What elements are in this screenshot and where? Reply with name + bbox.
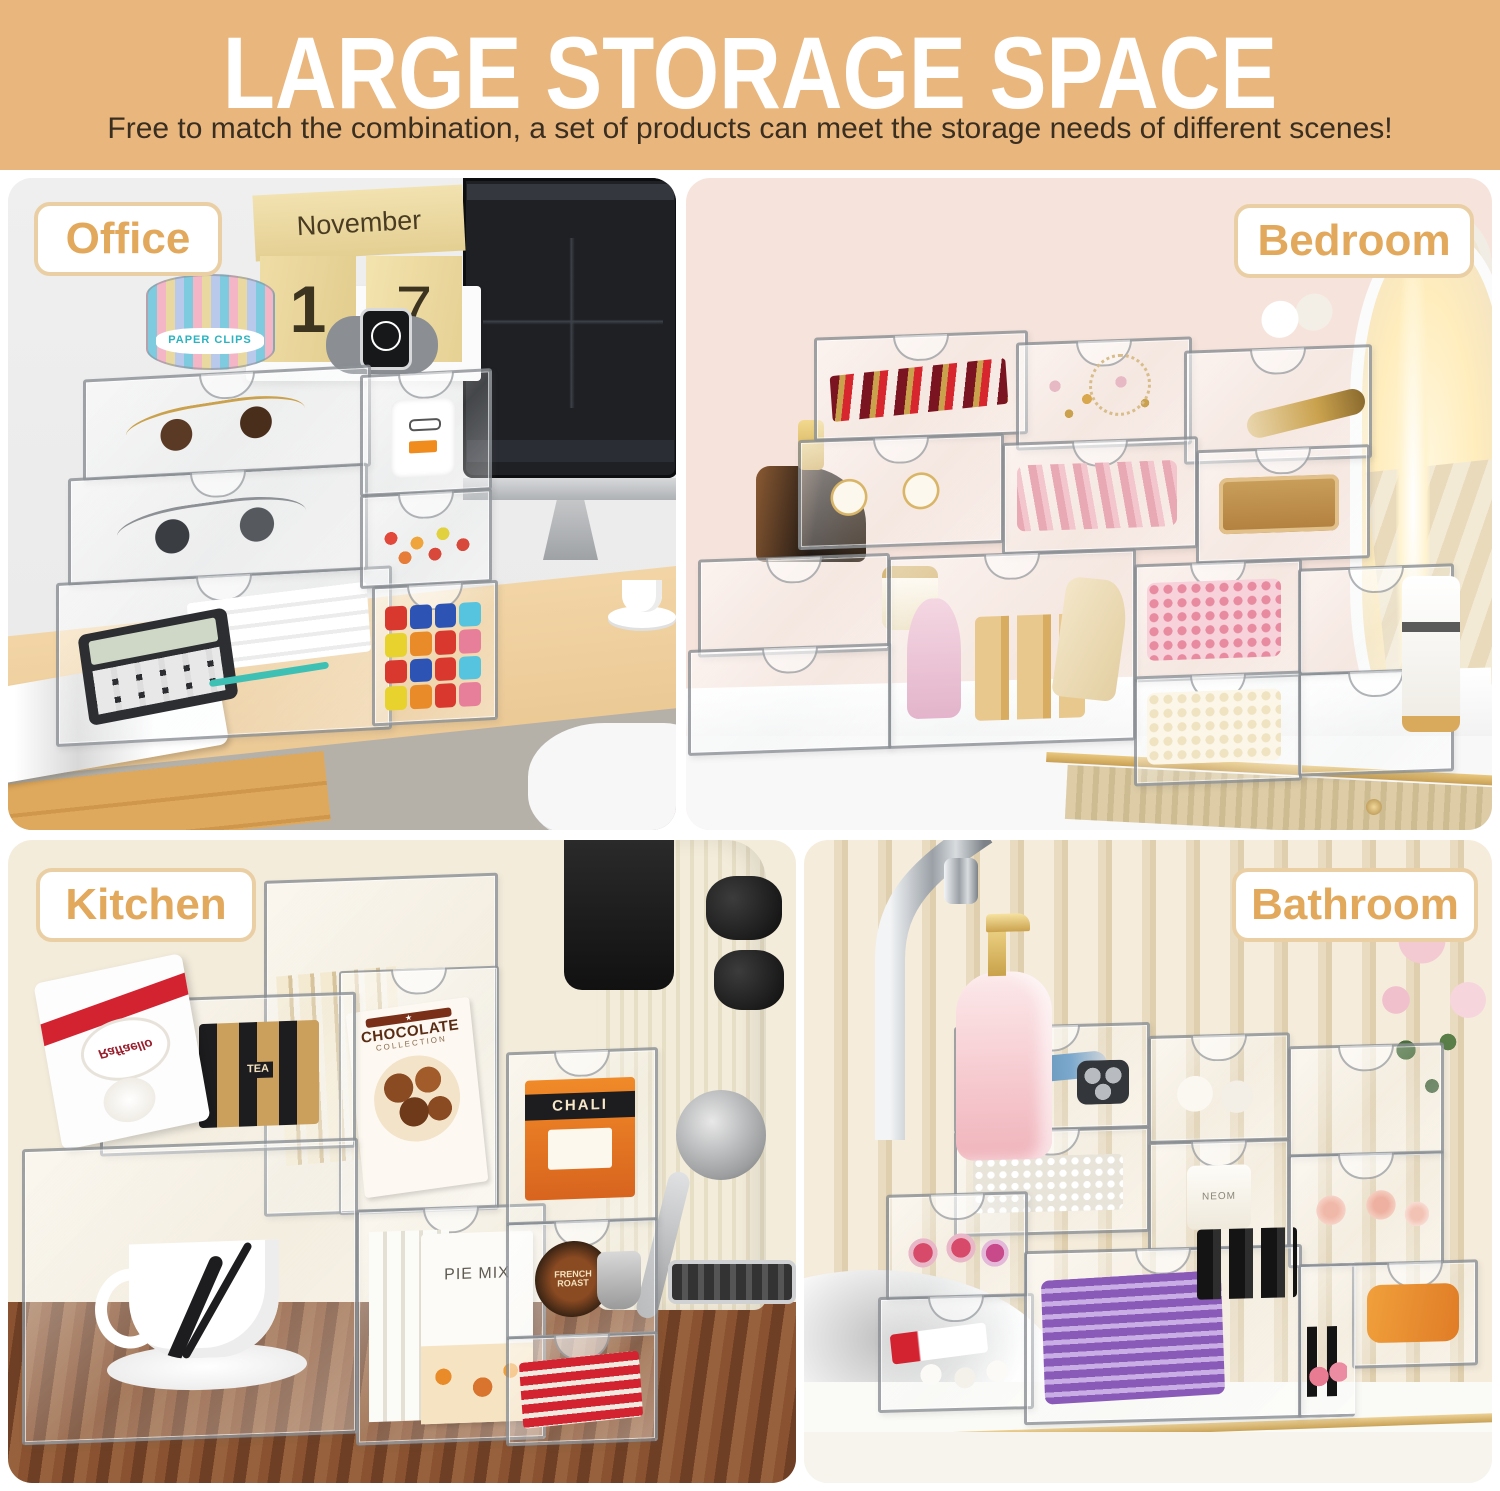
nail-polish-pink bbox=[1307, 1326, 1347, 1397]
bedroom-label: Bedroom bbox=[1234, 204, 1474, 278]
scented-candle: NEOM bbox=[1187, 1164, 1251, 1230]
cup-body bbox=[622, 580, 662, 612]
drawer-toothpaste bbox=[878, 1293, 1034, 1413]
pink-pearls bbox=[1147, 578, 1281, 661]
red-tea-packets bbox=[519, 1351, 643, 1429]
electric-shaver-head bbox=[1077, 1059, 1129, 1104]
orange-soaps bbox=[1367, 1283, 1459, 1343]
drawer-handle bbox=[1191, 1034, 1247, 1061]
marker-caps bbox=[385, 602, 481, 711]
chali-label: CHALI bbox=[552, 1096, 608, 1115]
bathroom-scene: NEOM bbox=[804, 840, 1492, 1483]
candle-label: NEOM bbox=[1202, 1191, 1236, 1202]
cotton-pads bbox=[1165, 1066, 1269, 1121]
kitchen-label-text: Kitchen bbox=[65, 880, 226, 930]
kitchen-label: Kitchen bbox=[36, 868, 256, 942]
drawer-handle bbox=[1250, 347, 1306, 375]
drawer-empty-left-1 bbox=[698, 553, 890, 658]
drawer-markers bbox=[372, 580, 498, 727]
skincare-bottle bbox=[1402, 576, 1460, 732]
box-chali: CHALI bbox=[506, 1047, 658, 1226]
drawer-handle bbox=[1255, 447, 1311, 475]
drawer-handle bbox=[398, 491, 454, 520]
office-label-text: Office bbox=[66, 214, 191, 264]
kraft-tea-bags: TEA bbox=[199, 1020, 319, 1128]
drawer-blush bbox=[1196, 444, 1370, 564]
drawer-handle bbox=[1338, 1045, 1394, 1072]
drawer-handle bbox=[1135, 1248, 1191, 1275]
drawer-orange bbox=[1352, 1259, 1478, 1368]
drawer-towels bbox=[1288, 1150, 1444, 1268]
blush-palette bbox=[1219, 474, 1339, 534]
drawer-handle bbox=[1348, 566, 1404, 594]
chocolate-box: ★ CHOCOLATE COLLECTION bbox=[346, 997, 489, 1199]
big-box-teacup bbox=[22, 1138, 358, 1446]
drawer-handle bbox=[984, 553, 1040, 581]
box-coffee-pods: FRENCH ROAST bbox=[506, 1217, 658, 1340]
box-red-packets bbox=[506, 1331, 658, 1446]
rolled-towels bbox=[1303, 1174, 1429, 1245]
drawer-cream-jars bbox=[798, 433, 1004, 550]
usba-port bbox=[409, 440, 437, 453]
drawer-nail-polish-pink bbox=[1298, 1263, 1355, 1418]
drawer-jewelry bbox=[1016, 336, 1192, 450]
rinse-cups bbox=[899, 1217, 1009, 1278]
raffaello-box: Raffaello bbox=[33, 953, 210, 1151]
pink-perfume bbox=[907, 597, 961, 719]
chali-sublabel bbox=[548, 1128, 612, 1170]
nail-polish-black-caps bbox=[1197, 1227, 1297, 1300]
drawer-cotton-pads bbox=[1148, 1032, 1290, 1144]
drawer-empty-left-2 bbox=[688, 643, 892, 756]
drawer-handle bbox=[1348, 670, 1404, 698]
header-banner: LARGE STORAGE SPACE Free to match the co… bbox=[0, 0, 1500, 170]
calculator bbox=[77, 607, 238, 726]
product-collage: LARGE STORAGE SPACE Free to match the co… bbox=[0, 0, 1500, 1491]
toothpaste-tubes bbox=[911, 1354, 1015, 1395]
makeup-brushes bbox=[1017, 460, 1177, 532]
raffaello-label: Raffaello bbox=[97, 1037, 153, 1062]
subtitle: Free to match the combination, a set of … bbox=[0, 112, 1500, 146]
bathroom-label: Bathroom bbox=[1232, 868, 1478, 942]
skincare-band bbox=[1402, 622, 1460, 632]
usbc-port bbox=[409, 418, 441, 432]
lipsticks bbox=[830, 358, 1009, 422]
drawer-cups bbox=[886, 1191, 1028, 1301]
soap-dispenser bbox=[956, 971, 1052, 1162]
hair-ties bbox=[375, 520, 475, 569]
chali-band: CHALI bbox=[525, 1091, 635, 1121]
sunglasses-black bbox=[115, 489, 309, 570]
usb-charger bbox=[391, 397, 455, 478]
kitchen-scene: ★ CHOCOLATE COLLECTION TEA Raffaello bbox=[8, 840, 796, 1483]
drawer-nail-polish bbox=[888, 548, 1136, 749]
drawer-handle bbox=[928, 1295, 984, 1322]
drawer-hair-ties bbox=[360, 488, 492, 589]
drawer-top-right-bath bbox=[1288, 1042, 1444, 1158]
drawer-white-pearls bbox=[1134, 671, 1302, 787]
drawer-chocolate: ★ CHOCOLATE COLLECTION bbox=[339, 966, 499, 1216]
chali-box: CHALI bbox=[525, 1077, 635, 1201]
drawer-handle bbox=[893, 334, 949, 362]
drawer-handle bbox=[190, 470, 246, 499]
bedroom-label-text: Bedroom bbox=[1257, 216, 1450, 266]
box-raffaello-tea: TEA Raffaello bbox=[100, 992, 356, 1157]
drawer-desk-supplies bbox=[56, 565, 392, 747]
drawer-handle bbox=[554, 1050, 610, 1078]
office-label: Office bbox=[34, 202, 222, 276]
office-scene: November 1 7 PAPER CLIPS bbox=[8, 178, 676, 830]
raffaello-truffle bbox=[100, 1073, 159, 1127]
drawer-handle bbox=[766, 556, 822, 584]
makeup-pouch bbox=[1051, 576, 1131, 702]
bedroom-scene: Bedroom bbox=[686, 178, 1492, 830]
drawer-masks bbox=[1024, 1244, 1302, 1425]
drawer-handle bbox=[398, 371, 454, 400]
sunglasses-brown bbox=[124, 388, 308, 467]
drawer-sunglasses-black bbox=[68, 463, 368, 587]
bathroom-label-text: Bathroom bbox=[1251, 880, 1459, 930]
cookie-image bbox=[370, 1050, 465, 1147]
drawer-lipsticks bbox=[814, 330, 1028, 441]
drawer-brushes bbox=[1002, 436, 1198, 555]
drawer-handle bbox=[762, 646, 818, 674]
drawer-pink-pearls bbox=[1134, 559, 1302, 683]
white-pearls bbox=[1147, 688, 1281, 765]
pod-gray bbox=[597, 1251, 641, 1311]
drawer-handle bbox=[391, 967, 447, 995]
tea-bag-label: TEA bbox=[243, 1062, 273, 1079]
coffee-cup bbox=[608, 606, 676, 628]
drawer-charger bbox=[360, 368, 492, 497]
dispenser-spout bbox=[986, 913, 1030, 932]
powder-puffs bbox=[1252, 287, 1342, 348]
french-roast-label: FRENCH ROAST bbox=[548, 1269, 598, 1290]
cream-jars bbox=[813, 459, 983, 527]
